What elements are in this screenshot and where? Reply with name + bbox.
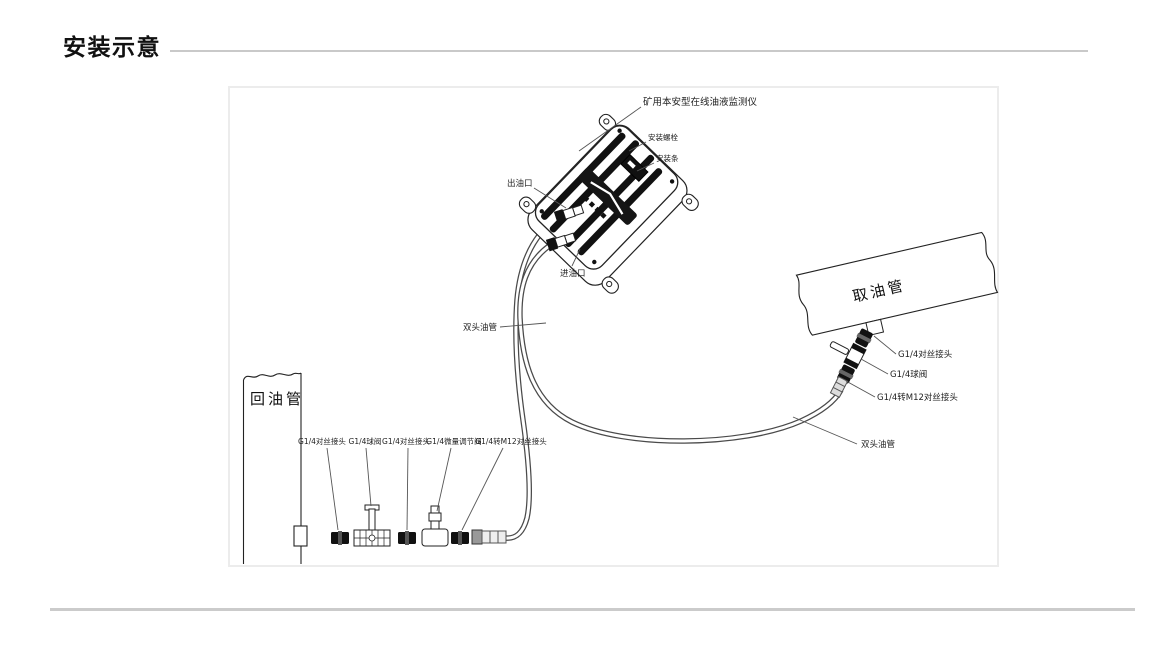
left-connector-2	[398, 531, 416, 545]
oil-inlet-label: 进油口	[560, 268, 586, 279]
installation-diagram: 回油管 取油管	[0, 0, 1150, 655]
double-hose-label-right: 双头油管	[861, 439, 895, 450]
left-connector-3	[451, 531, 469, 545]
return-pipe-port	[294, 526, 307, 546]
installation-section: 安装示意 回油管 取油管	[0, 0, 1150, 655]
mounting-strip-end	[632, 169, 638, 175]
mounting-bolt-label: 安装螺栓	[648, 132, 678, 142]
double-hose-label-mid: 双头油管	[463, 322, 497, 333]
oil-outlet-label: 出油口	[507, 178, 533, 189]
right-chain-label-m12-connector: G1/4转M12对丝接头	[877, 392, 958, 403]
right-chain-label-connector: G1/4对丝接头	[898, 349, 953, 360]
return-pipe-label: 回油管	[250, 390, 304, 408]
left-chain-label-connector-2: G1/4对丝接头	[382, 436, 430, 446]
left-chain-label-connector-1: G1/4对丝接头	[298, 436, 346, 446]
left-chain-label-ball-valve: G1/4球阀	[349, 436, 382, 446]
left-chain-label-m12-connector: G1/4转M12对丝接头	[475, 436, 547, 446]
left-connector-1	[331, 531, 349, 545]
mounting-strip-label: 安装条	[656, 153, 679, 163]
device-label: 矿用本安型在线油液监测仪	[643, 96, 758, 108]
left-chain-label-micro-valve: G1/4微量调节阀	[426, 436, 481, 446]
right-chain-label-ball-valve: G1/4球阀	[890, 369, 927, 380]
left-hose-end	[472, 530, 506, 544]
